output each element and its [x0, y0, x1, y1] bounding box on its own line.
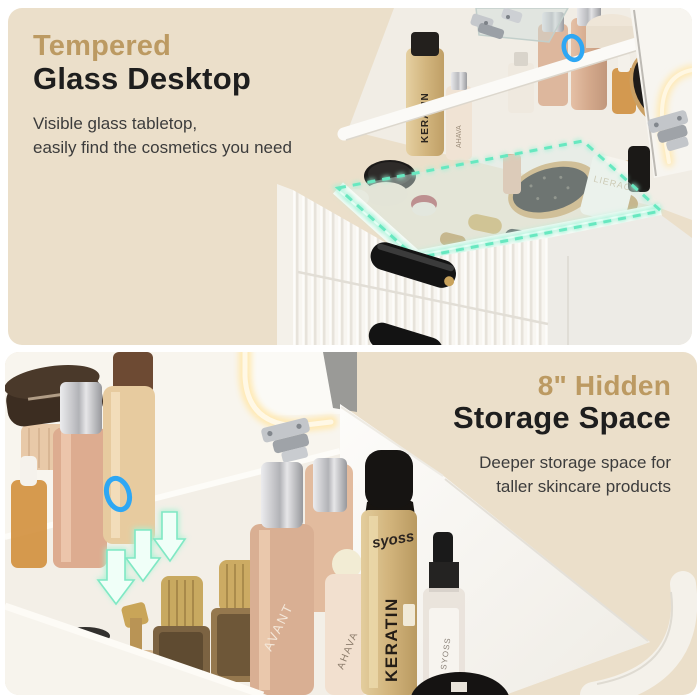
- dropper-bottle: [11, 480, 47, 568]
- foundation-bottle: [53, 382, 107, 568]
- top-heading-main: Glass Desktop: [33, 62, 292, 97]
- svg-text:KERATIN: KERATIN: [420, 92, 431, 143]
- top-panel-copy: Tempered Glass Desktop Visible glass tab…: [33, 30, 292, 159]
- bottom-panel-copy: 8" Hidden Storage Space Deeper storage s…: [453, 370, 671, 498]
- bottom-body-copy: Deeper storage space for taller skincare…: [453, 451, 671, 498]
- hairspray-can: syoss KERATIN: [361, 450, 417, 695]
- feature-panel-glass-desktop: KERATIN AHAVA: [8, 8, 692, 345]
- svg-text:AHAVA: AHAVA: [456, 125, 463, 148]
- bottom-heading-accent: 8" Hidden: [453, 370, 671, 401]
- svg-text:KERATIN: KERATIN: [382, 597, 401, 682]
- feature-panel-hidden-storage: AVANT AHAVA syoss KERATIN: [5, 352, 697, 695]
- top-heading-accent: Tempered: [33, 30, 292, 62]
- top-body-copy: Visible glass tabletop, easily find the …: [33, 112, 292, 159]
- bottom-heading-main: Storage Space: [453, 401, 671, 436]
